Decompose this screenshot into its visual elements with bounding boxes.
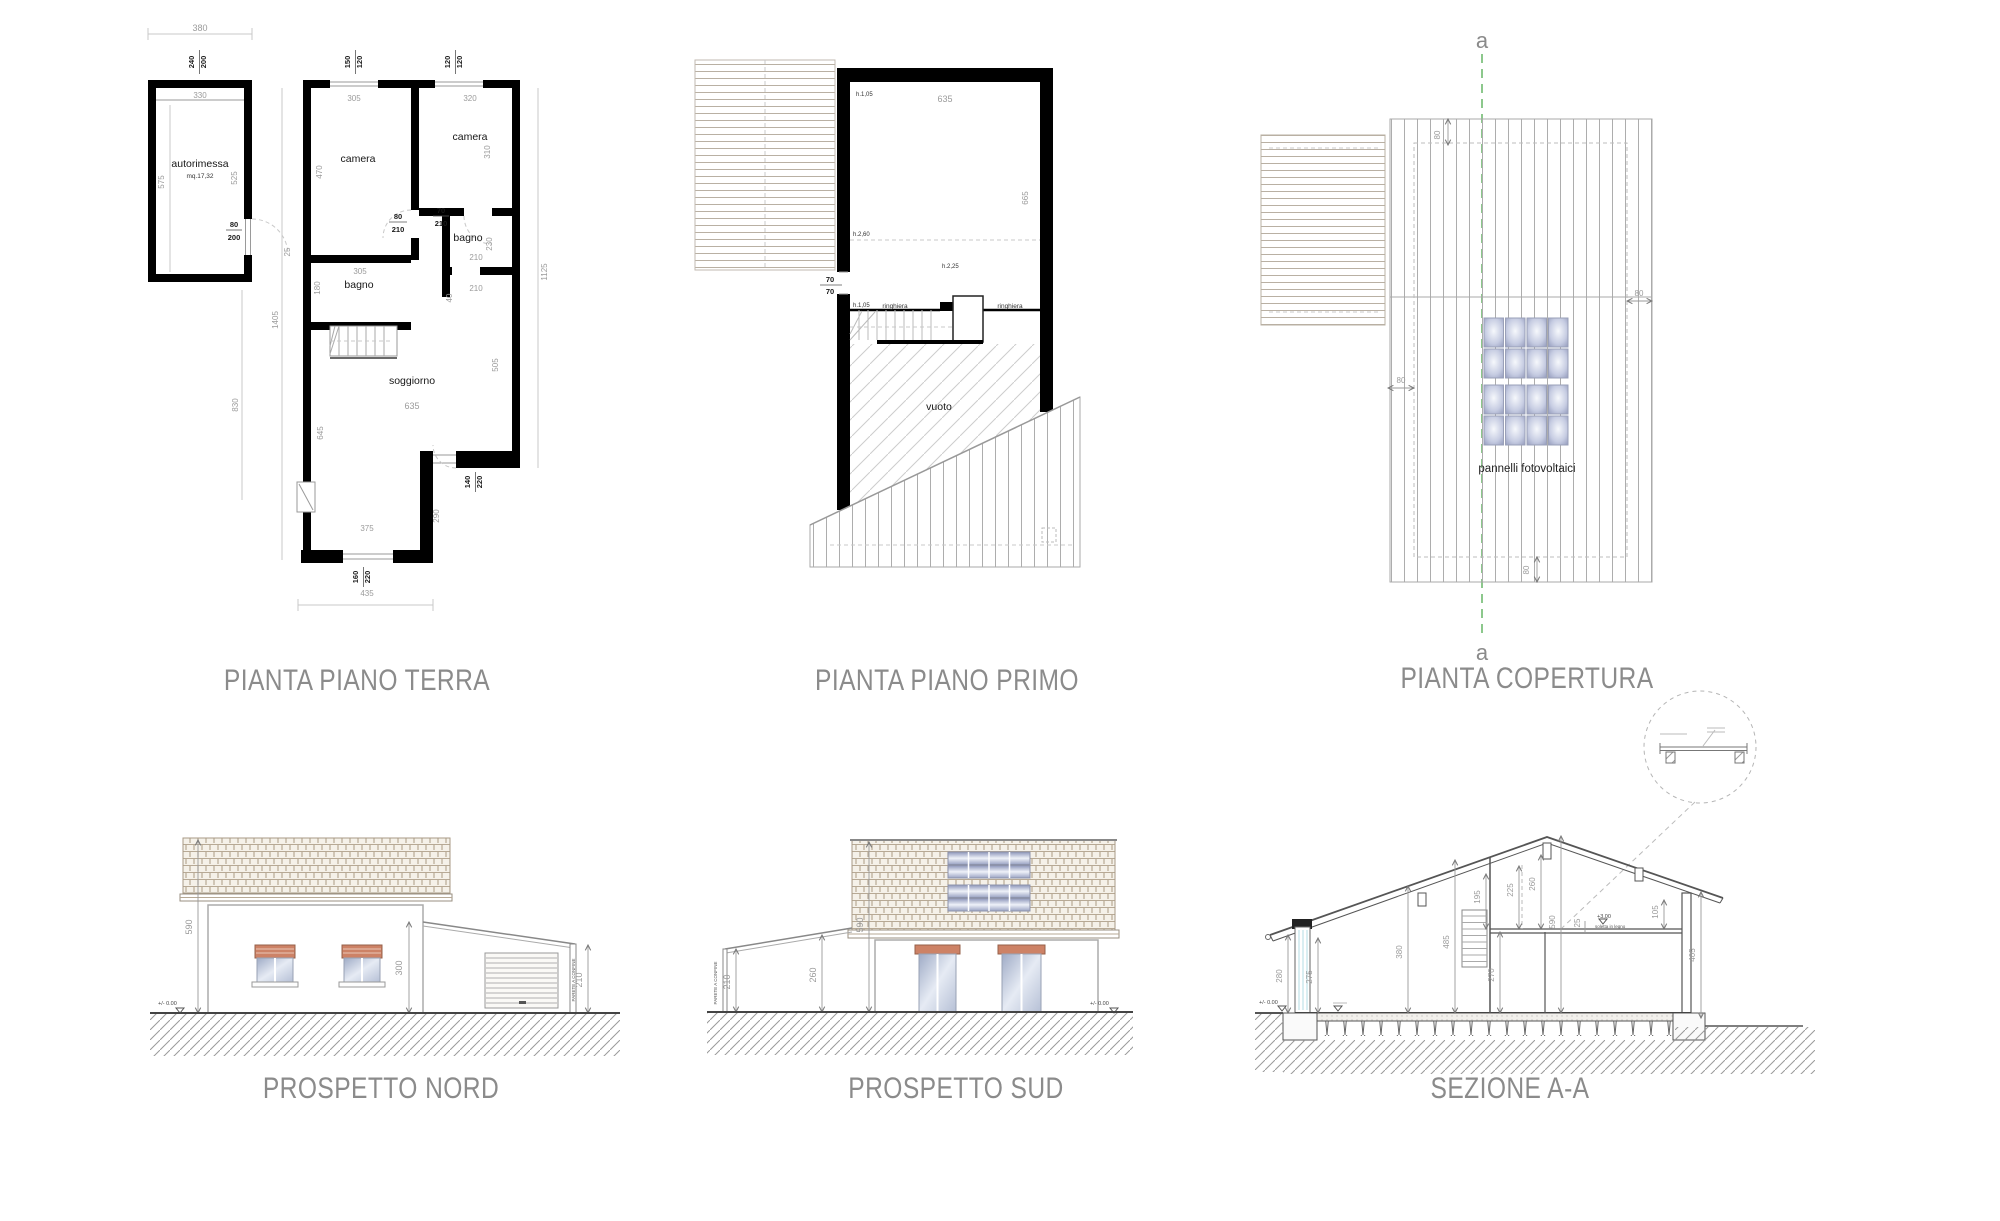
dim-310: 310 (483, 145, 492, 159)
wall-face (875, 940, 1098, 1012)
title-pianta-terra: PIANTA PIANO TERRA (224, 664, 490, 698)
railing-label-2: ringhiera (997, 303, 1023, 310)
roof-hatch-left (695, 60, 835, 270)
dim-280: 280 (1275, 969, 1284, 983)
height-note-3: h.2,25 (942, 264, 959, 270)
dim-win2-a: 120 (443, 56, 452, 69)
room-label-autorimessa: autorimessa (171, 158, 228, 170)
dim-665: 665 (1021, 191, 1030, 205)
height-note-1: h.1,05 (856, 92, 873, 98)
level-triangle-inner (1334, 1006, 1342, 1011)
dimension-lines (148, 28, 538, 611)
dim-80-left: 80 (1397, 376, 1406, 385)
foundation (1255, 1013, 1815, 1074)
window-1 (252, 945, 298, 987)
ground (150, 1013, 620, 1056)
dim-275: 275 (1305, 970, 1314, 984)
railing-label-1: ringhiera (882, 303, 908, 310)
garage-leanto (423, 922, 576, 1013)
door-1 (915, 945, 960, 1012)
dim-door3-b: 220 (475, 476, 484, 489)
dim-525: 525 (230, 171, 239, 185)
dim-1125: 1125 (540, 263, 549, 281)
walls-section (1292, 857, 1691, 1025)
first-floor-plan: 635 665 h.1,05 h.2,60 h.2,25 h.1,05 70 7… (690, 40, 1100, 590)
title-prospetto-sud: PROSPETTO SUD (848, 1072, 1063, 1106)
dim-590: 590 (1548, 915, 1557, 929)
drawing-sheet: 380 240 200 330 autorimessa mq.17,32 575… (0, 0, 2000, 1221)
south-elevation-svg: 210 PARETE A CONFINE 260 590 +/- 0.00 (700, 830, 1150, 1065)
roof-left (1261, 135, 1385, 325)
railing-and-stairs (850, 240, 1040, 344)
north-elevation-svg: 590 300 210 PARETE A CONFINE +/- 0.00 (150, 830, 620, 1065)
roof-plan-svg: a 80 80 80 80 pannelli fotovoltaici a (1255, 20, 1685, 665)
dim-80-bottom: 80 (1522, 565, 1531, 574)
dim-garage-window-a: 240 (187, 56, 196, 69)
boundary-wall-note: PARETE A CONFINE (713, 962, 718, 1005)
dim-305b: 305 (353, 267, 367, 276)
dim-180: 180 (313, 281, 322, 295)
dim-25: 25 (1573, 918, 1582, 927)
dim-230: 230 (485, 237, 494, 251)
level-zero: +/- 0.00 (1259, 1000, 1278, 1006)
dim-win3-a: 160 (351, 571, 360, 584)
dim-door-b: 70 (826, 287, 834, 296)
dim-435: 435 (360, 589, 374, 598)
dim-210d: 210 (469, 284, 483, 293)
room-label-camera1: camera (340, 153, 375, 165)
section-aa: 280 275 380 485 270 195 225 260 590 25 1… (1255, 690, 1815, 1085)
dim-win1-b: 120 (355, 56, 364, 69)
void-label: vuoto (926, 401, 952, 413)
solar-panels-label: pannelli fotovoltaici (1478, 463, 1575, 475)
dim-25: 25 (283, 247, 292, 256)
dim-375: 375 (360, 524, 374, 533)
level-marker: +/- 0.00 (158, 1001, 177, 1007)
dim-470: 470 (315, 165, 324, 179)
south-elevation: 210 PARETE A CONFINE 260 590 +/- 0.00 (700, 830, 1150, 1070)
dim-290: 290 (432, 509, 441, 523)
dim-door-a: 70 (826, 275, 834, 284)
section-marker-top: a (1476, 28, 1489, 53)
dim-330: 330 (193, 91, 207, 100)
dim-door2-b: 210 (435, 219, 448, 228)
dim-590: 590 (855, 917, 865, 932)
room-label-camera2: camera (452, 131, 487, 143)
roof-elevation (180, 838, 452, 901)
title-sezione: SEZIONE A-A (1431, 1072, 1590, 1106)
room-label-bagno1: bagno (344, 279, 373, 291)
dim-80-right: 80 (1635, 289, 1644, 298)
dim-635: 635 (404, 401, 419, 411)
dim-260: 260 (1528, 877, 1537, 891)
dim-40: 40 (445, 293, 454, 302)
dim-830: 830 (231, 398, 240, 412)
leanto-left (723, 928, 852, 1012)
dim-garage-door-a: 80 (230, 220, 238, 229)
dim-door3-a: 140 (463, 476, 472, 489)
wood-slab-note: soletta in legno (1595, 924, 1626, 929)
dim-305a: 305 (347, 94, 361, 103)
boundary-wall-note: PARETE A CONFINE (571, 959, 576, 1002)
dim-win1-a: 150 (343, 56, 352, 69)
section-dimension-lines (1288, 836, 1701, 1018)
garage-walls (148, 80, 288, 282)
dim-300: 300 (394, 960, 404, 975)
dim-80-top: 80 (1433, 130, 1442, 139)
dim-win2-b: 120 (455, 56, 464, 69)
dim-405: 405 (1688, 948, 1697, 962)
height-note-2: h.2,60 (853, 232, 870, 238)
dim-225: 225 (1506, 883, 1515, 897)
title-pianta-primo: PIANTA PIANO PRIMO (815, 664, 1079, 698)
dim-635: 635 (937, 94, 952, 104)
dim-garage-window-b: 200 (199, 56, 208, 69)
dim-1405: 1405 (271, 311, 280, 329)
dim-door1-b: 210 (392, 225, 405, 234)
detail-circle (1562, 691, 1756, 928)
section-aa-svg: 280 275 380 485 270 195 225 260 590 25 1… (1255, 690, 1815, 1080)
dim-210: 210 (722, 974, 732, 989)
dim-door1-a: 80 (394, 212, 402, 221)
north-elevation: 590 300 210 PARETE A CONFINE +/- 0.00 (150, 830, 620, 1070)
door-2 (998, 945, 1045, 1012)
roof-plan: a 80 80 80 80 pannelli fotovoltaici a (1255, 20, 1685, 670)
dim-195: 195 (1473, 890, 1482, 904)
room-label-soggiorno: soggiorno (389, 375, 435, 387)
ground (707, 1012, 1133, 1055)
title-prospetto-nord: PROSPETTO NORD (263, 1072, 499, 1106)
wall-face (208, 905, 423, 1013)
level-triangle-0 (1278, 1006, 1286, 1011)
room-label-bagno2: bagno (453, 232, 482, 244)
elevation-dimensions (736, 842, 869, 1012)
dim-575: 575 (157, 175, 166, 189)
title-copertura: PIANTA COPERTURA (1400, 662, 1653, 696)
dim-320: 320 (463, 94, 477, 103)
dim-485: 485 (1442, 935, 1451, 949)
dim-garage-door-b: 200 (228, 233, 241, 242)
ground-floor-plan-svg: 380 240 200 330 autorimessa mq.17,32 575… (130, 20, 590, 665)
room-area-autorimessa: mq.17,32 (186, 173, 213, 180)
dim-645: 645 (316, 426, 325, 440)
dim-door2-a: 70 (437, 206, 445, 215)
ground-floor-plan: 380 240 200 330 autorimessa mq.17,32 575… (130, 20, 590, 670)
dim-win3-b: 220 (363, 571, 372, 584)
dim-210c: 210 (469, 253, 483, 262)
dim-270: 270 (1487, 968, 1496, 982)
height-note-4: h.1,05 (853, 303, 870, 309)
stairs (330, 326, 397, 358)
dim-590: 590 (184, 919, 194, 934)
dim-505: 505 (491, 358, 500, 372)
level-marker: +/- 0.00 (1090, 1001, 1109, 1007)
dim-260: 260 (808, 967, 818, 982)
first-floor-plan-svg: 635 665 h.1,05 h.2,60 h.2,25 h.1,05 70 7… (690, 40, 1100, 585)
window-2 (339, 945, 385, 987)
dim-garage-width: 380 (192, 23, 207, 33)
dim-380: 380 (1395, 945, 1404, 959)
roof-section (1266, 837, 1724, 941)
dim-105: 105 (1651, 905, 1660, 919)
